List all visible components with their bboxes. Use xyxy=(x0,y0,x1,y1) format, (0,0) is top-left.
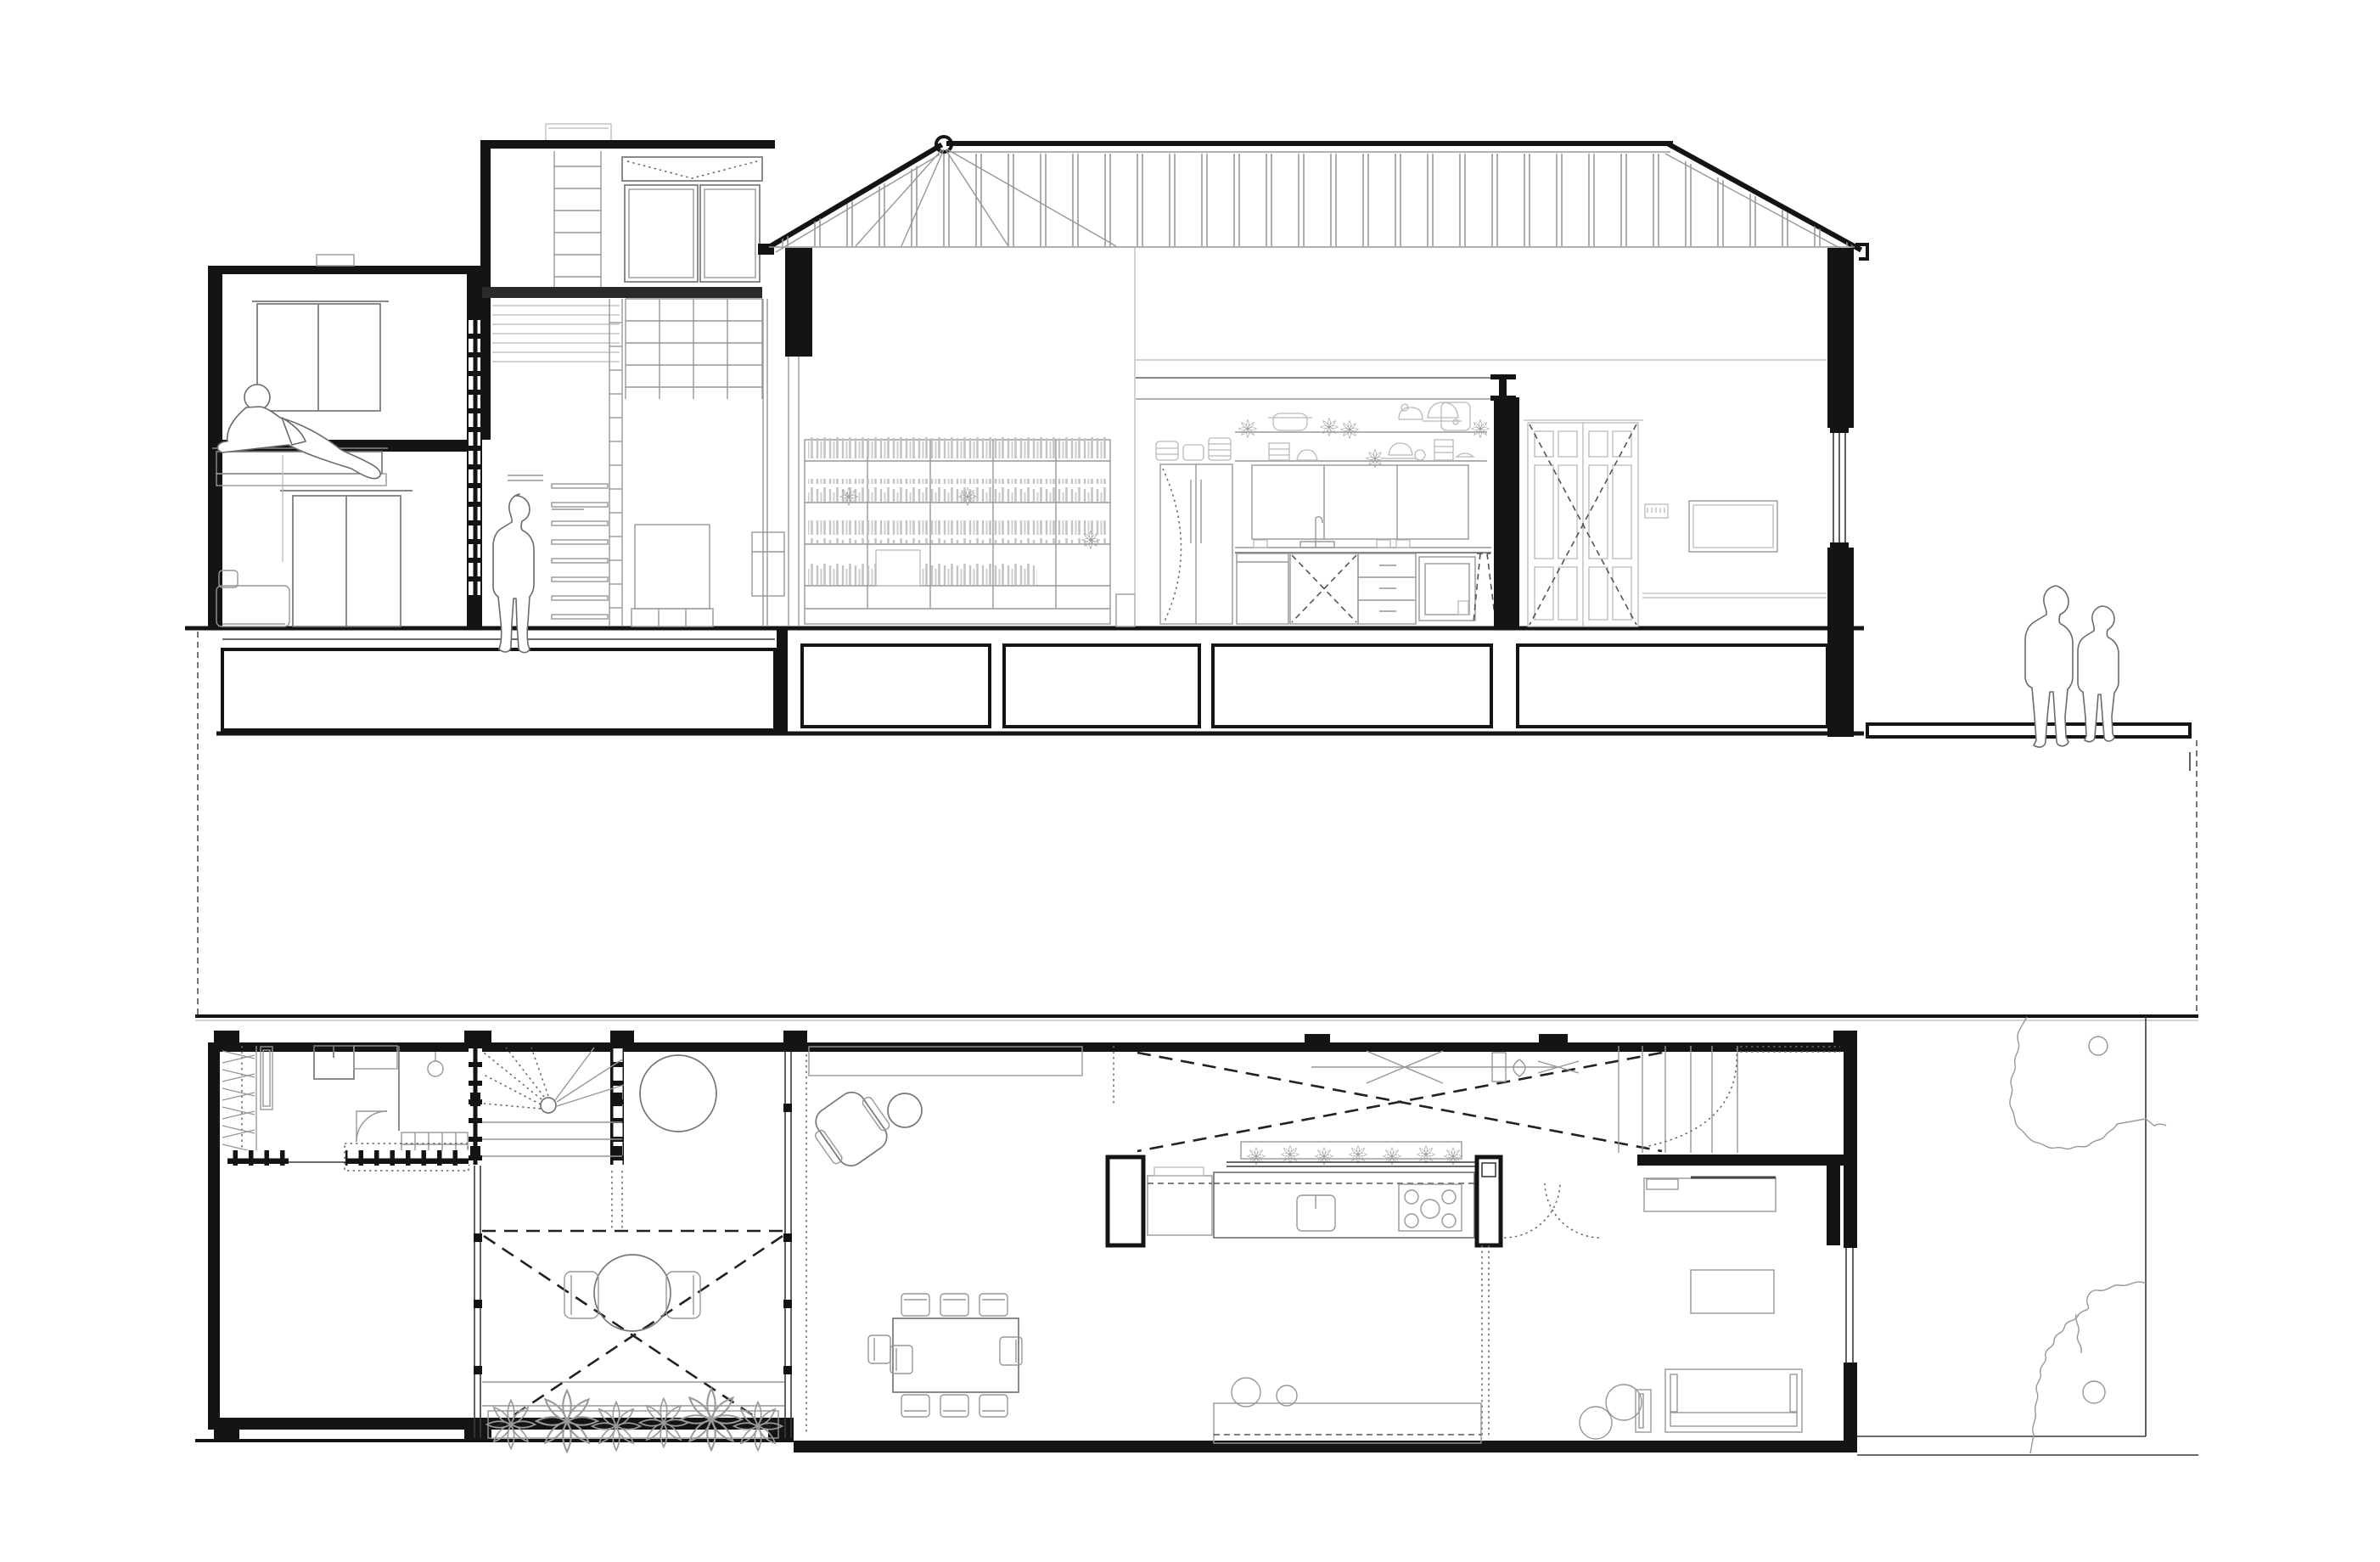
lower-flight-treads xyxy=(482,1048,624,1156)
sink-and-tap xyxy=(1300,517,1334,548)
round-table xyxy=(640,1055,716,1132)
foundation-void xyxy=(1213,645,1491,727)
shelf-column xyxy=(609,299,622,626)
wardrobe-inner xyxy=(263,1050,270,1106)
key-rack xyxy=(1645,504,1668,518)
bowl-stack xyxy=(1156,438,1231,460)
rear-hall-section xyxy=(1524,248,1854,737)
foundation-void xyxy=(1518,645,1827,727)
armchair xyxy=(805,1083,897,1175)
mezzanine-floor xyxy=(482,287,762,298)
casement-glass xyxy=(704,189,755,278)
cushion-circle xyxy=(1232,1378,1260,1407)
front-terrace xyxy=(640,1055,716,1132)
courtyard-chair xyxy=(564,1272,598,1318)
rear-stair xyxy=(1619,1046,1737,1153)
street-house-section xyxy=(208,255,482,628)
skylight-x-dashed xyxy=(487,1236,783,1433)
pendant-lamp xyxy=(428,1061,443,1076)
ottoman-circle xyxy=(888,1093,922,1127)
rear-wall-right xyxy=(794,1441,1857,1452)
kitchen-plan xyxy=(1108,1046,1662,1443)
drawing-svg: Residential architecture drawing — longi… xyxy=(0,0,2380,1562)
column xyxy=(1833,1031,1857,1042)
door-swing-dotted xyxy=(1640,1048,1737,1148)
rear-sidewalk-slab xyxy=(1867,724,2190,737)
desk xyxy=(1644,1177,1776,1211)
roof-studs xyxy=(769,154,1855,248)
panelled-door xyxy=(1528,423,1638,626)
roof-upstand xyxy=(317,255,354,266)
kitchen-elevation xyxy=(1136,374,1519,628)
foundation-void xyxy=(1004,645,1199,727)
architectural-drawing-canvas: Residential architecture drawing — longi… xyxy=(0,0,2380,1562)
right-wall-lower xyxy=(1844,1363,1857,1452)
foundation-void xyxy=(802,645,990,727)
wall-tv xyxy=(1689,501,1777,552)
upper-cabinets xyxy=(1252,465,1468,539)
rear-room-plan xyxy=(1606,1046,1844,1432)
door-swing-dotted xyxy=(1504,1183,1560,1238)
island-counter xyxy=(1214,1172,1474,1238)
left-wall xyxy=(208,1042,220,1430)
right-wall-upper xyxy=(1844,1042,1857,1248)
entry-room xyxy=(222,1046,469,1171)
wall-jog xyxy=(1539,1034,1568,1052)
courtyard-glazing-left xyxy=(474,1166,482,1438)
cabinet-x-dashed xyxy=(1292,555,1356,622)
tree-trunk xyxy=(2089,1037,2108,1055)
casement-window xyxy=(625,185,698,282)
winder-stair xyxy=(469,1046,624,1229)
books-row xyxy=(808,520,1107,543)
right-wall-window xyxy=(1846,1248,1853,1363)
dining-set xyxy=(868,1294,1022,1417)
floor-plan xyxy=(195,1016,2198,1455)
column xyxy=(610,1031,634,1042)
cubby-wall xyxy=(227,1150,469,1166)
bed-section xyxy=(631,525,713,626)
base-cabinets xyxy=(1237,553,1496,624)
column xyxy=(464,1430,491,1441)
courtyard-table xyxy=(594,1255,671,1331)
inner-wall-return xyxy=(1827,1166,1840,1245)
door-swing-arc xyxy=(356,1111,387,1142)
eave-pier xyxy=(785,248,812,357)
column xyxy=(464,1031,491,1042)
column xyxy=(214,1031,239,1042)
rear-window xyxy=(1830,428,1849,548)
roof-slab xyxy=(480,140,775,149)
garden xyxy=(1857,1016,2166,1453)
stair-section xyxy=(552,484,608,619)
closet-hangers xyxy=(222,1051,255,1152)
cabinet-section xyxy=(752,532,784,596)
newel-circle xyxy=(541,1098,556,1113)
living-dining-room xyxy=(805,1047,1082,1433)
ladder xyxy=(554,151,601,287)
kitchen-pier-plan xyxy=(1477,1157,1501,1245)
cross-section xyxy=(185,124,2197,1016)
seat-step xyxy=(216,474,386,486)
tree-canopy xyxy=(2010,1017,2166,1149)
wardrobe xyxy=(261,1047,272,1110)
shelf-tv xyxy=(876,550,920,586)
fridge-swing-dashed xyxy=(1163,469,1182,621)
door-swing-dotted xyxy=(1545,1183,1599,1238)
pouf-circle xyxy=(1580,1407,1612,1439)
column xyxy=(214,1430,239,1441)
window-bench xyxy=(1214,1378,1481,1443)
louver-wall xyxy=(492,306,620,362)
transom-window xyxy=(622,157,762,181)
balustrade-grid xyxy=(626,299,762,399)
column xyxy=(783,1031,807,1042)
foundation-wall xyxy=(777,630,788,732)
roof-slab xyxy=(208,266,482,274)
person-reclining xyxy=(217,385,380,479)
fridge xyxy=(1160,464,1232,624)
casement-window xyxy=(700,185,760,282)
glass-block-stack xyxy=(469,316,480,596)
daybed xyxy=(1665,1369,1802,1432)
mezzanine-block-section xyxy=(480,124,784,653)
sofa xyxy=(216,586,289,626)
books-row xyxy=(808,479,1107,502)
stove xyxy=(1399,1184,1462,1231)
courtyard xyxy=(474,1052,792,1452)
leaning-frame xyxy=(1636,1390,1651,1432)
oven xyxy=(1419,557,1475,621)
skylight-x-dashed xyxy=(484,1236,779,1433)
plan-walls xyxy=(208,1031,1857,1452)
wall-jog xyxy=(1305,1034,1330,1052)
upper-flight-dashed xyxy=(484,1048,548,1109)
rear-wall-lower xyxy=(1827,548,1854,737)
ottoman-table xyxy=(1691,1270,1774,1313)
books-row xyxy=(808,562,1037,585)
ibeam-icon xyxy=(1490,374,1516,401)
roof-railing xyxy=(546,124,611,140)
shelf-items xyxy=(1239,402,1490,467)
wall-tv-inner xyxy=(1693,505,1773,548)
rear-wall-upper xyxy=(1827,248,1854,428)
inner-wall xyxy=(1637,1155,1844,1166)
foundation-void xyxy=(222,649,775,730)
casement-glass xyxy=(629,189,693,278)
courtyard-glazing-right xyxy=(783,1052,792,1438)
books-row xyxy=(808,437,1107,460)
tree-trunk xyxy=(2083,1381,2105,1403)
side-table xyxy=(1116,594,1135,626)
stool-dashed xyxy=(1473,553,1496,622)
kitchen-pier xyxy=(1494,397,1519,628)
tree-canopy xyxy=(2030,1282,2146,1453)
ground-and-foundation xyxy=(185,628,2197,1016)
living-bookshelf xyxy=(805,248,1135,626)
hanging-pot-rack xyxy=(1311,1051,1579,1083)
service-counter xyxy=(1108,1157,1212,1245)
